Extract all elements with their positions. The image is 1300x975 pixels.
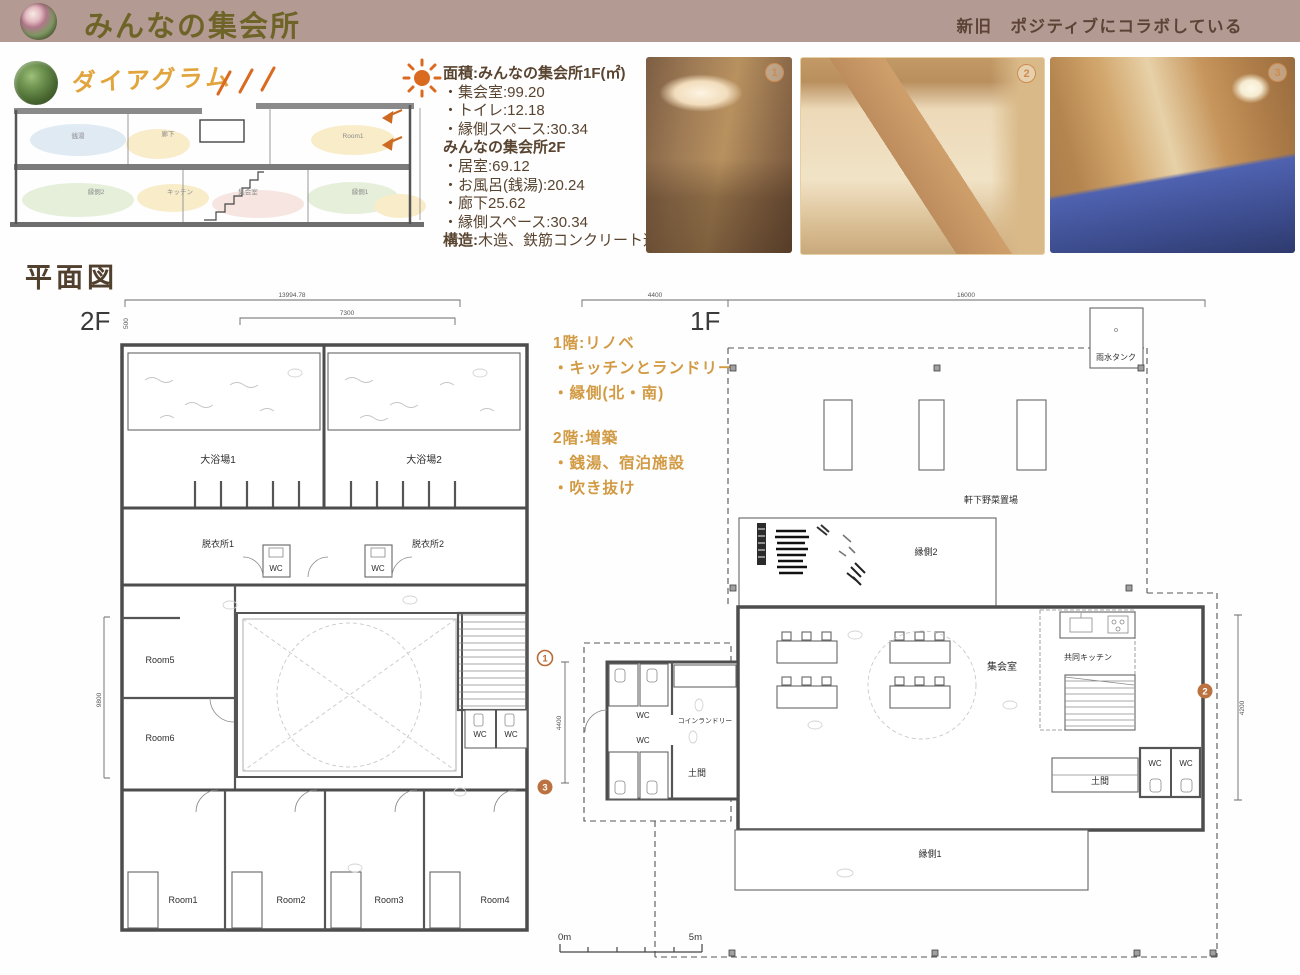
dim-left-width: 4400 — [648, 292, 663, 299]
camera-marker-2: 2 — [1198, 684, 1213, 699]
dim-left-height: 9800 — [96, 692, 103, 707]
dim-inner-width: 7300 — [340, 310, 355, 317]
room-label-room2: Room2 — [276, 895, 305, 905]
sun-rays — [218, 68, 274, 94]
photo-number-badge: 2 — [1017, 64, 1036, 83]
dimension-right-1f: 4200 — [1234, 615, 1246, 800]
room-label-engawa2: 縁側2 — [914, 546, 937, 557]
room-label-engawa1: 縁側1 — [918, 848, 941, 859]
model-photo-2: 2 — [800, 57, 1045, 255]
camera-marker-1: 1 — [538, 651, 553, 666]
rain-tank: 雨水タンク — [1090, 308, 1143, 368]
photo-number-badge: 3 — [1268, 63, 1287, 82]
section-label-room1: Room1 — [343, 133, 364, 140]
room-label-bath1: 大浴場1 — [200, 453, 236, 466]
scale-start-label: 0m — [558, 932, 571, 943]
flower-logo — [20, 3, 57, 40]
engawa1-zone: 縁側1 — [735, 830, 1088, 890]
room-label-wc: WC — [371, 564, 385, 573]
room-label-wc: WC — [269, 564, 283, 573]
svg-text:2: 2 — [1202, 687, 1207, 698]
room-label-doma: 土間 — [688, 767, 706, 778]
presentation-board: みんなの集会所 新旧 ポジティブにコラボしている ダイアグラム — [0, 0, 1300, 975]
room-label-room5: Room5 — [145, 655, 174, 665]
area-line: みんなの集会所2F — [443, 139, 566, 156]
area-info: 面積:みんなの集会所1F(㎡) ・集会室:99.20 ・トイレ:12.18 ・縁… — [443, 65, 658, 251]
floor-plan-2f: 13994.78 7300 500 9800 大浴場1 大浴場2 脱衣所1 脱衣… — [90, 285, 580, 935]
room-label-room6: Room6 — [145, 733, 174, 743]
dim-offset: 500 — [123, 318, 130, 329]
svg-text:3: 3 — [542, 783, 547, 794]
dimension-lines-1f: 4400 16000 — [582, 292, 1205, 307]
building-section-diagram: 銭湯 廊下 Room1 縁側2 キッチン 集会室 縁側1 — [8, 64, 438, 256]
doma-east: 土間 — [1052, 758, 1138, 792]
photo-number-badge: 1 — [765, 63, 784, 82]
header: みんなの集会所 新旧 ポジティブにコラボしている — [0, 0, 1300, 42]
section-label-engawa1: 縁側1 — [352, 187, 369, 196]
room-label-room1: Room1 — [168, 895, 197, 905]
section-label-hall: 廊下 — [162, 129, 176, 138]
atrium-void — [237, 613, 462, 777]
room-label-veggie: 軒下野菜置場 — [964, 494, 1018, 505]
dim-main-width: 16000 — [957, 292, 975, 299]
section-label-meeting: 集会室 — [238, 187, 258, 196]
room-label-dressing2: 脱衣所2 — [412, 538, 444, 549]
floor-plan-1f: 4400 16000 雨水タンク 軒下 — [555, 285, 1260, 975]
area-line: 構造: — [443, 232, 478, 249]
room-label-laundry: コインランドリー — [678, 717, 733, 725]
scale-end-label: 5m — [689, 932, 702, 943]
room-label-wc: WC — [636, 736, 650, 745]
room-label-wc: WC — [473, 730, 487, 739]
room-label-wc: WC — [1148, 759, 1162, 768]
veggie-area: 軒下野菜置場 — [824, 400, 1046, 505]
header-tagline: 新旧 ポジティブにコラボしている — [956, 13, 1243, 37]
room-label-doma: 土間 — [1091, 775, 1109, 786]
svg-text:1: 1 — [542, 654, 548, 665]
room-label-room3: Room3 — [374, 895, 403, 905]
model-photo-3: 3 — [1050, 57, 1295, 253]
room-label-wc: WC — [636, 711, 650, 720]
room-label-rain-tank: 雨水タンク — [1096, 352, 1136, 362]
camera-marker-3: 3 — [538, 780, 553, 795]
room-label-kitchen: 共同キッチン — [1064, 653, 1112, 662]
room-label-wc: WC — [504, 730, 518, 739]
scale-bar: 0m 5m — [558, 932, 702, 952]
svg-text:4200: 4200 — [1239, 700, 1246, 715]
section-label-kitchen: キッチン — [167, 188, 193, 196]
room-label-wc: WC — [1179, 759, 1193, 768]
room-label-meeting: 集会室 — [987, 660, 1017, 673]
stairs-1f — [1065, 675, 1135, 730]
room-label-room4: Room4 — [480, 895, 509, 905]
wc-zone-2f: WC WC — [465, 710, 527, 748]
room-label-bath2: 大浴場2 — [406, 453, 442, 466]
section-label-bath: 銭湯 — [72, 131, 86, 140]
sun-icon — [402, 58, 442, 98]
west-wing: WC WC コインランドリー 土間 — [585, 662, 738, 799]
room-label-dressing1: 脱衣所1 — [202, 538, 234, 549]
page-title: みんなの集会所 — [84, 3, 301, 45]
dim-total-width: 13994.78 — [278, 292, 305, 299]
model-photo-1: 1 — [646, 57, 792, 253]
area-line: 面積:みんなの集会所1F(㎡) — [443, 65, 626, 82]
engawa2-zone: 縁側2 — [739, 518, 996, 607]
section-label-engawa2: 縁側2 — [88, 187, 105, 196]
